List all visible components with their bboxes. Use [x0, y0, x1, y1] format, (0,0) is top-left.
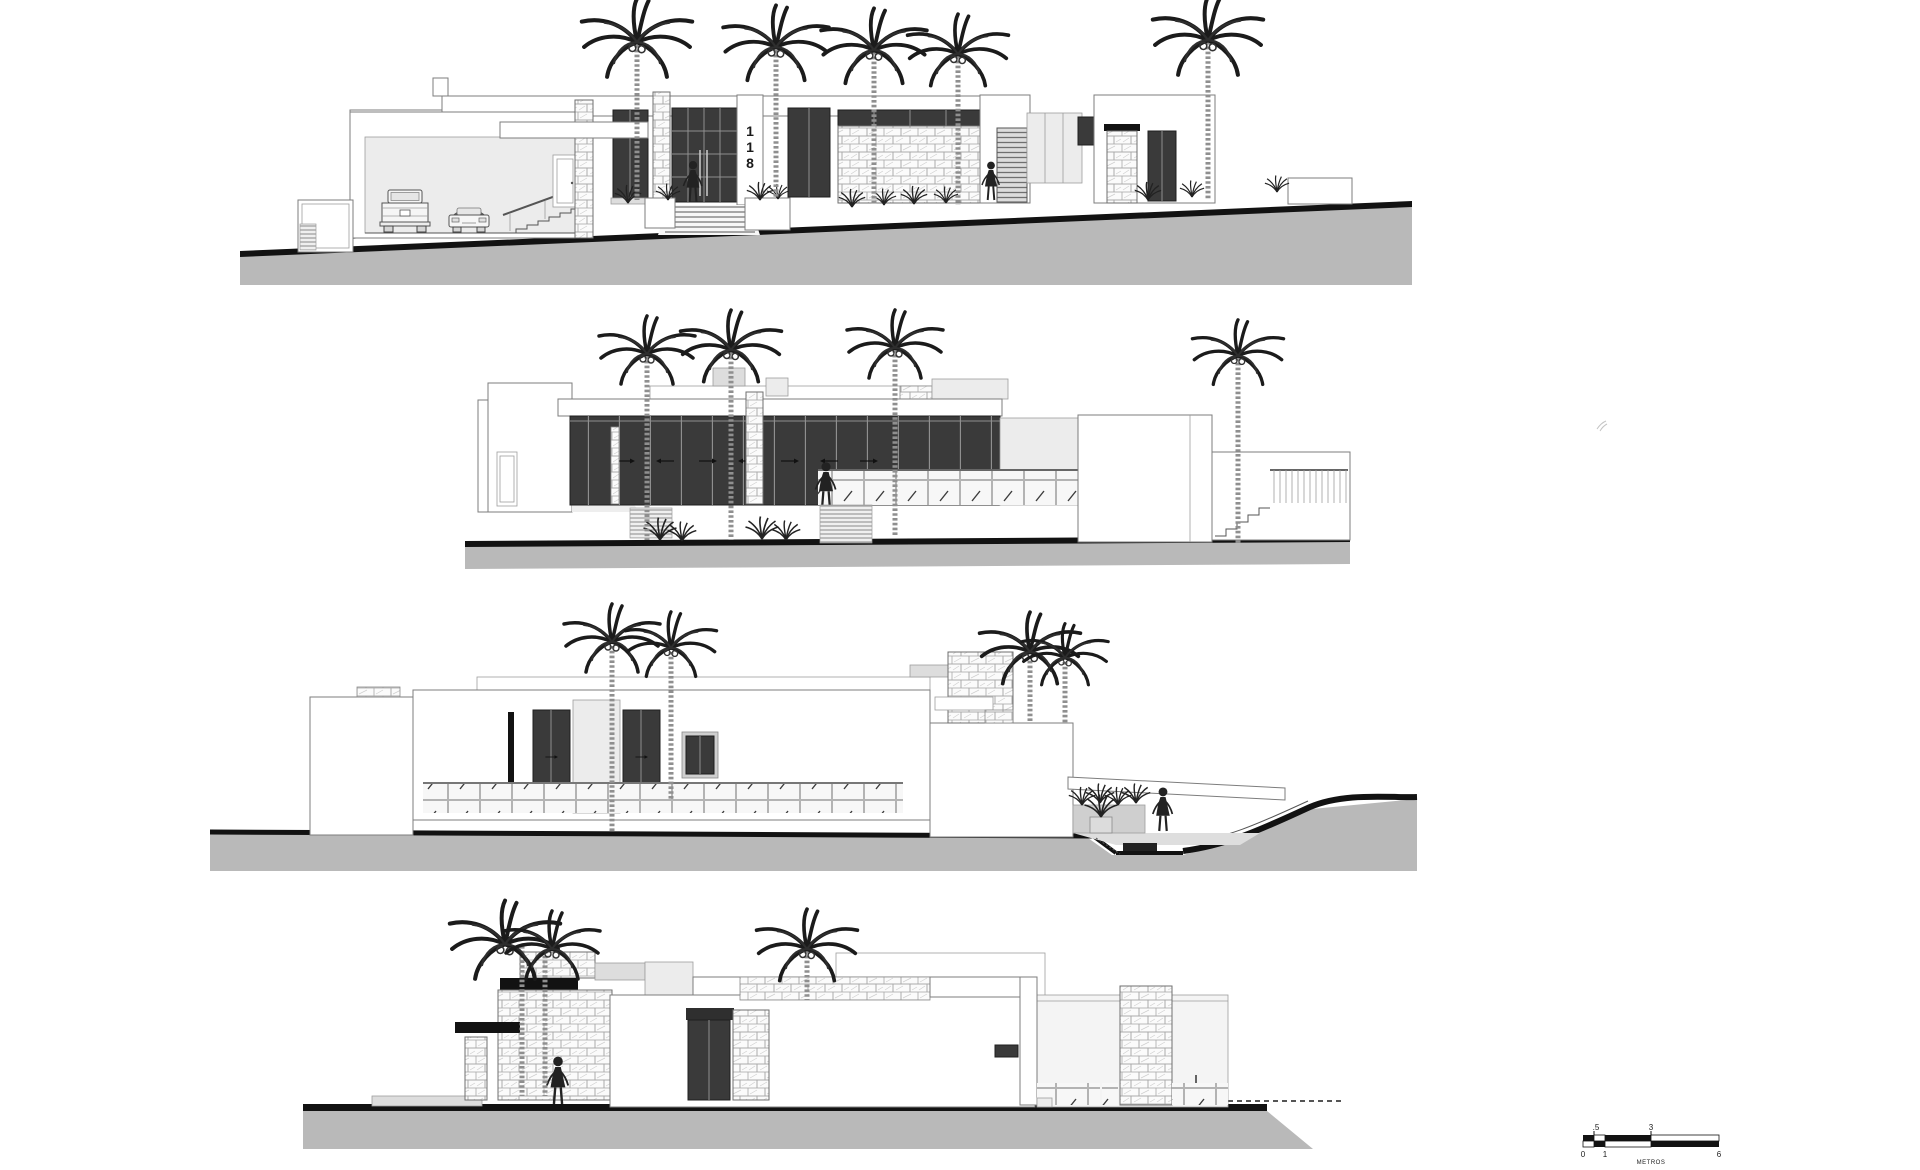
scale-label-zero: 0	[1581, 1150, 1586, 1159]
palm-tree-icon	[908, 14, 1009, 85]
black-beam	[500, 978, 578, 990]
stone-column	[653, 92, 670, 200]
glass-railing	[1172, 1083, 1228, 1105]
stone-column	[733, 1010, 769, 1100]
pillar	[1020, 977, 1037, 1105]
house-number-digit: 1	[746, 123, 754, 139]
planter-wall	[745, 198, 790, 230]
ground	[465, 536, 1350, 569]
plant-icon	[772, 521, 801, 541]
palm-tree-icon	[599, 316, 695, 384]
plant-icon	[746, 517, 779, 540]
stone-column	[746, 392, 763, 504]
stone-chimney	[1120, 986, 1172, 1105]
stray-mark	[1597, 421, 1607, 431]
black-beam	[455, 1022, 520, 1033]
door-assembly	[686, 1008, 769, 1100]
right-wing	[995, 977, 1228, 1107]
glass-railing	[1102, 1083, 1118, 1105]
right-volume	[1078, 415, 1350, 542]
street-planter-box	[298, 200, 353, 252]
court-and-right-wing	[980, 95, 1352, 204]
house-number-digit: 8	[746, 155, 754, 171]
sunken-garden	[630, 505, 872, 543]
stone-pier	[575, 100, 593, 238]
scale-label-half: .5	[1593, 1123, 1600, 1132]
architectural-elevations-sheet: 1 1 8	[0, 0, 1920, 1170]
stone-pier	[465, 1037, 487, 1100]
elevation-2-rear-facade	[465, 310, 1350, 569]
elevation-3-side-facade	[210, 604, 1417, 871]
roof-slab	[558, 399, 1002, 416]
slat-gate	[997, 128, 1027, 202]
glass-railing	[423, 783, 903, 813]
elevation-4-side-facade	[303, 901, 1345, 1149]
planter-box	[1090, 817, 1112, 833]
glass-railing	[818, 470, 1078, 505]
scale-bar: .5 3 0 1 6 METROS	[1581, 1123, 1722, 1166]
curb	[1123, 843, 1157, 851]
scale-unit-label: METROS	[1637, 1160, 1666, 1166]
scale-label-one: 1	[1603, 1150, 1608, 1159]
main-wall	[610, 953, 1045, 1107]
palm-tree-icon	[847, 310, 943, 378]
steps	[820, 505, 872, 543]
low-wall-box	[1288, 178, 1352, 204]
planter-wall	[645, 198, 675, 228]
garage-side-door	[553, 155, 577, 207]
palm-tree-icon	[723, 5, 829, 80]
stone-pillar	[1107, 131, 1137, 203]
house-number-digit: 1	[746, 139, 754, 155]
scale-label-three: 3	[1649, 1123, 1654, 1132]
ground	[303, 1101, 1345, 1149]
window-small-dark	[995, 1045, 1018, 1057]
elevation-1-street-facade: 1 1 8	[240, 0, 1412, 285]
entry-glass-door	[672, 108, 737, 202]
entry-canopy	[500, 122, 648, 138]
scale-label-six: 6	[1717, 1150, 1722, 1159]
pickup-truck-icon	[380, 190, 430, 232]
black-cap-band	[1104, 124, 1140, 131]
window-dark	[682, 732, 718, 778]
